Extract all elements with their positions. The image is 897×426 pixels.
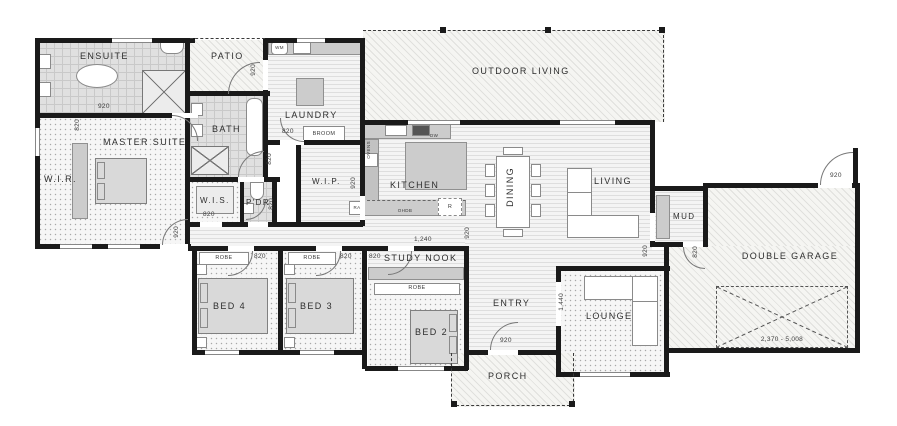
dim-study-nook-1240: 1,240 <box>414 236 432 243</box>
room-label-study-nook: STUDY NOOK <box>384 253 457 263</box>
window <box>398 366 444 371</box>
room-label-living: LIVING <box>594 176 632 186</box>
room-label-bath: BATH <box>212 124 241 134</box>
door-gap <box>650 213 655 241</box>
master-pillow-1 <box>97 162 105 179</box>
window <box>300 350 334 355</box>
dim-wip-opening-920: 920 <box>350 177 357 189</box>
fixture-label-dw: DW <box>430 133 438 138</box>
room-label-lounge: LOUNGE <box>586 311 632 321</box>
fixture-label-robe: ROBE <box>288 255 336 261</box>
outdoor-living-floor <box>363 30 665 122</box>
fixture-label-fridge: R <box>438 204 462 210</box>
bed3-pillow <box>288 283 296 303</box>
laundry-island <box>296 78 324 106</box>
room-label-bed3: BED 3 <box>300 301 333 311</box>
dim-bed3-door-820: 820 <box>340 253 352 260</box>
fixture-label-wm: WM <box>271 45 288 50</box>
wall <box>855 183 860 353</box>
window <box>560 120 615 125</box>
window <box>112 38 152 43</box>
room-label-master-suite: MASTER SUITE <box>103 137 186 147</box>
bed4-pillow <box>200 283 208 303</box>
ensuite-vanity-2 <box>39 82 51 97</box>
room-label-laundry: LAUNDRY <box>285 110 338 120</box>
wall <box>703 183 708 247</box>
room-label-mud: MUD <box>673 212 695 221</box>
bed4-pillow <box>200 308 208 328</box>
dim-patio-door-920: 920 <box>250 64 257 76</box>
room-label-entry: ENTRY <box>493 298 530 308</box>
room-label-porch: PORCH <box>488 371 528 381</box>
room-label-double-garage: DOUBLE GARAGE <box>740 250 840 262</box>
dining-chair <box>531 204 541 217</box>
bed4-side-table <box>196 337 207 348</box>
bed3-pillow <box>288 308 296 328</box>
porch-dashed-edge <box>573 353 574 407</box>
post <box>545 27 551 33</box>
room-label-patio: PATIO <box>211 51 244 61</box>
room-label-kitchen: KITCHEN <box>390 180 439 190</box>
living-sofa-seat <box>567 215 639 238</box>
garage-floor-upper <box>705 186 857 250</box>
wall <box>278 222 363 227</box>
cooktop <box>412 125 430 136</box>
master-pillow-2 <box>97 183 105 200</box>
wall <box>650 120 655 190</box>
bath-shower <box>191 146 229 175</box>
post <box>440 27 446 33</box>
living-sofa-cushion <box>567 168 592 193</box>
room-label-pdr: P'DR <box>246 198 270 207</box>
ensuite-toilet <box>160 42 184 54</box>
outdoor-living-dashed-edge <box>363 30 665 31</box>
room-label-ensuite: ENSUITE <box>80 51 129 61</box>
outdoor-living-dashed-edge <box>663 30 664 122</box>
window <box>60 244 92 249</box>
dim-bed2-door-820: 820 <box>369 253 381 260</box>
wall <box>192 246 197 355</box>
bed3-side-table <box>284 264 295 275</box>
dim-entry-door-920: 920 <box>500 337 512 344</box>
garage-external-door-arc <box>820 152 853 185</box>
bed4-side-table <box>196 264 207 275</box>
room-label-bed2: BED 2 <box>415 327 448 337</box>
dim-master-door-920: 920 <box>173 226 180 238</box>
floor-plan: ENSUITE PATIO OUTDOOR LIVING LAUNDRY BAT… <box>0 0 897 426</box>
mud-bench <box>656 195 670 239</box>
post <box>569 401 575 407</box>
wall <box>650 186 707 191</box>
dining-chair <box>503 147 523 155</box>
fixture-label-robe: ROBE <box>199 255 249 261</box>
window <box>35 128 40 156</box>
fixture-label-ovens: OVENS <box>366 141 371 159</box>
wall <box>362 249 367 369</box>
wall <box>278 249 283 353</box>
patio-dashed-edge <box>190 38 265 39</box>
door-gap <box>238 177 264 182</box>
lounge-sofa-cushion <box>632 276 658 302</box>
dining-chair <box>485 164 495 177</box>
door-gap <box>263 60 268 90</box>
room-label-wir: W.I.R. <box>44 174 77 184</box>
dim-lounge-opening-1440: 1,440 <box>558 293 565 311</box>
dim-garage-clearance: 2,370 - 5,008 <box>716 336 848 343</box>
dim-mud-door-820: 820 <box>692 246 699 258</box>
wall <box>240 180 244 225</box>
bathtub-freestanding <box>76 64 118 88</box>
fixture-label-broom: BROOM <box>303 131 345 137</box>
ensuite-vanity-1 <box>39 54 51 69</box>
post <box>659 27 665 33</box>
dim-bath-door-820: 820 <box>266 153 273 165</box>
door-gap <box>488 350 518 355</box>
dining-chair <box>531 164 541 177</box>
wall <box>664 242 669 376</box>
dim-hall-920: 920 <box>464 227 471 239</box>
room-label-bed4: BED 4 <box>213 301 246 311</box>
door-gap <box>248 222 268 227</box>
wall <box>185 38 190 118</box>
window <box>580 372 630 377</box>
dim-ensuite-920: 920 <box>98 103 110 110</box>
wall <box>38 113 188 118</box>
bed3-side-table <box>284 337 295 348</box>
fixture-label-robe: ROBE <box>374 285 460 291</box>
wall <box>296 142 301 226</box>
dim-garage-door-920: 920 <box>830 172 842 179</box>
wall <box>664 348 860 353</box>
fixture-label-ra: RA <box>349 205 365 210</box>
room-label-dining: DINING <box>505 167 515 207</box>
wall <box>853 148 858 188</box>
ensuite-shower <box>142 70 186 114</box>
dim-wis-door-820: 820 <box>203 211 215 218</box>
dim-laundry-door-820: 820 <box>282 128 294 135</box>
room-label-outdoor-living: OUTDOOR LIVING <box>472 66 570 76</box>
room-label-wis: W.I.S. <box>200 196 230 205</box>
window <box>108 244 140 249</box>
fixture-label-ohdb: OHDB <box>390 208 420 213</box>
window <box>408 120 460 125</box>
window <box>205 350 239 355</box>
dim-pdr-door-820: 820 <box>268 198 275 210</box>
room-label-wip: W.I.P. <box>312 177 341 186</box>
wall <box>464 246 469 370</box>
dim-bed4-door-820: 820 <box>254 253 266 260</box>
kitchen-sink <box>385 125 407 136</box>
dim-mud-passage-920: 920 <box>642 245 649 257</box>
dining-chair <box>485 184 495 197</box>
dining-chair <box>503 229 523 237</box>
study-nook-desk <box>368 267 464 280</box>
bathtub <box>246 98 263 156</box>
bed2-pillow <box>449 336 457 354</box>
post <box>451 401 457 407</box>
bed2-pillow <box>449 314 457 332</box>
dining-chair <box>531 184 541 197</box>
window <box>297 38 325 43</box>
door-gap <box>200 222 222 227</box>
dim-ensuite-door-820: 820 <box>74 119 81 131</box>
porch-dashed-edge <box>451 405 575 406</box>
porch-dashed-edge <box>451 353 452 407</box>
wall <box>556 266 670 271</box>
dining-chair <box>485 204 495 217</box>
